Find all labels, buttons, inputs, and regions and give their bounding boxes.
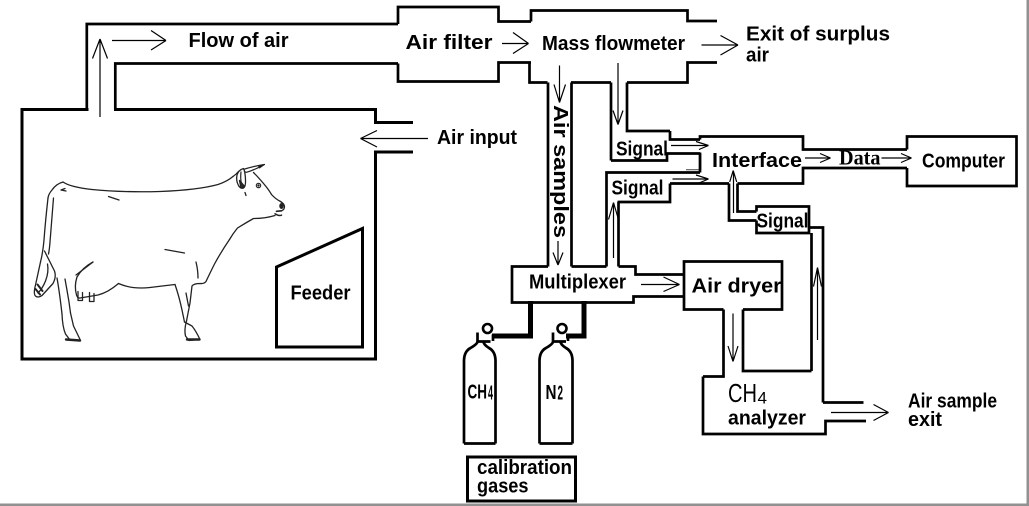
svg-text:CH: CH bbox=[728, 378, 757, 408]
svg-text:Exit of surplus: Exit of surplus bbox=[746, 24, 890, 46]
svg-text:N: N bbox=[546, 382, 557, 404]
svg-text:Signal: Signal bbox=[757, 211, 809, 233]
svg-text:Computer: Computer bbox=[922, 151, 1005, 173]
svg-text:Interface: Interface bbox=[712, 150, 802, 172]
svg-text:Feeder: Feeder bbox=[291, 283, 351, 305]
svg-text:Data: Data bbox=[839, 146, 881, 170]
svg-text:2: 2 bbox=[558, 383, 564, 405]
svg-text:Multiplexer: Multiplexer bbox=[529, 272, 626, 294]
svg-text:Air samples: Air samples bbox=[549, 105, 571, 238]
svg-text:Signal: Signal bbox=[616, 139, 668, 161]
svg-text:Signal: Signal bbox=[612, 178, 664, 200]
svg-text:exit: exit bbox=[908, 409, 942, 431]
svg-text:Mass flowmeter: Mass flowmeter bbox=[542, 33, 685, 55]
svg-text:Flow of air: Flow of air bbox=[189, 30, 289, 52]
svg-text:Air filter: Air filter bbox=[406, 32, 493, 54]
svg-text:air: air bbox=[746, 45, 769, 67]
svg-text:analyzer: analyzer bbox=[728, 408, 806, 430]
svg-text:CH: CH bbox=[468, 382, 488, 404]
svg-text:4: 4 bbox=[758, 389, 768, 408]
svg-text:Air input: Air input bbox=[437, 127, 517, 149]
svg-text:gases: gases bbox=[477, 476, 529, 498]
svg-text:4: 4 bbox=[488, 383, 493, 405]
svg-text:Air dryer: Air dryer bbox=[692, 276, 782, 298]
